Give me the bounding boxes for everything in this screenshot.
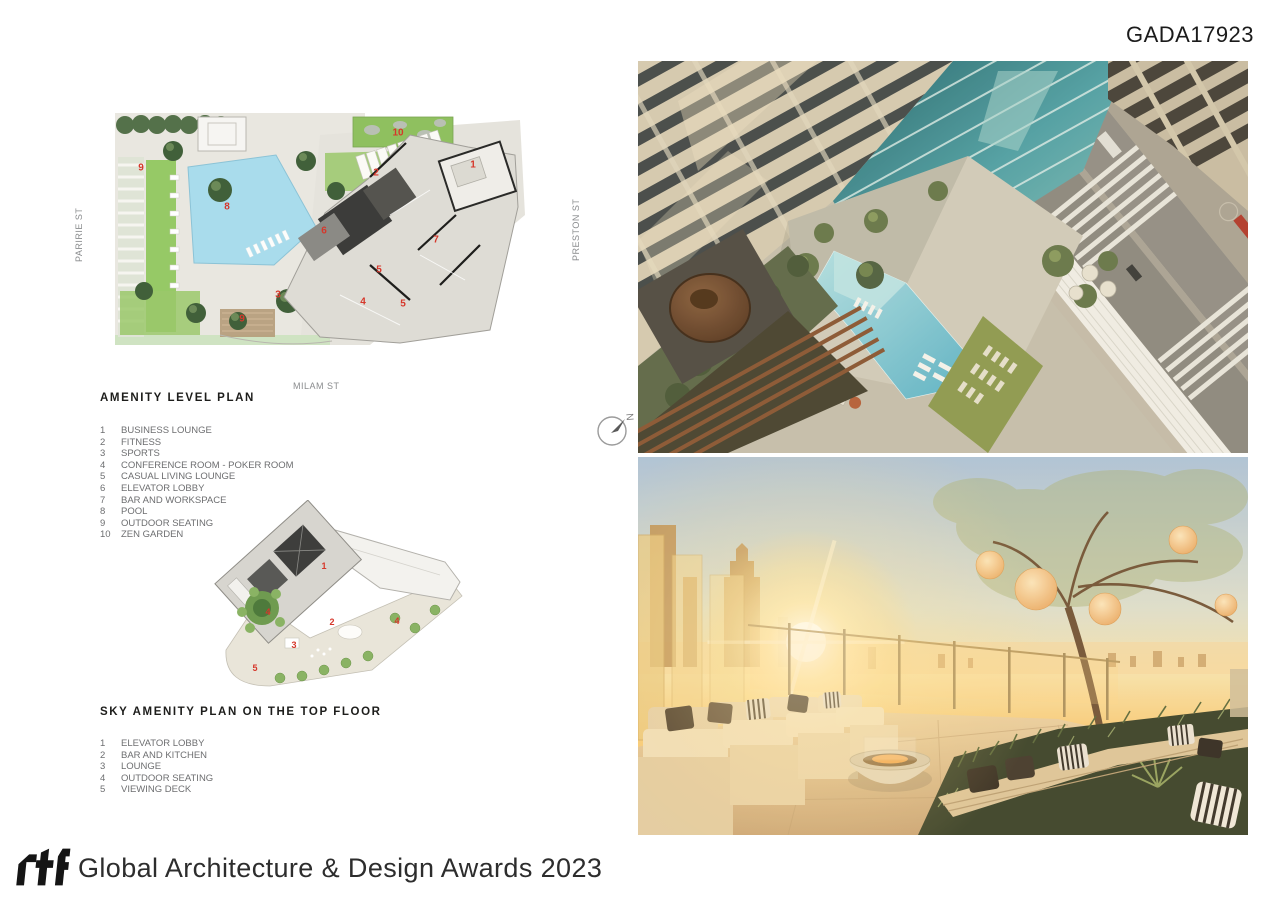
marker-2: 2 bbox=[329, 617, 334, 627]
marker-2: 2 bbox=[373, 168, 379, 179]
marker-3: 3 bbox=[291, 640, 296, 650]
legend-item: 2FITNESS bbox=[100, 437, 294, 449]
award-title: Global Architecture & Design Awards 2023 bbox=[78, 853, 602, 884]
marker-4b: 4 bbox=[394, 616, 399, 626]
north-letter: N bbox=[623, 413, 635, 421]
legend-item: 1ELEVATOR LOBBY bbox=[100, 738, 213, 750]
legend-item: 5CASUAL LIVING LOUNGE bbox=[100, 471, 294, 483]
marker-6: 6 bbox=[321, 226, 327, 237]
marker-9a: 9 bbox=[138, 163, 144, 174]
marker-8: 8 bbox=[224, 202, 230, 213]
amenity-level-plan-drawing: 9 10 1 2 8 6 7 5 3 4 5 9 bbox=[70, 95, 530, 385]
marker-1: 1 bbox=[321, 561, 326, 571]
marker-5b: 5 bbox=[400, 299, 406, 310]
plan1-title: AMENITY LEVEL PLAN bbox=[100, 392, 255, 404]
tower-slab bbox=[215, 500, 361, 643]
marker-5a: 5 bbox=[376, 265, 382, 276]
sunset-roof-terrace-photo bbox=[638, 457, 1248, 835]
marker-9b: 9 bbox=[239, 314, 245, 325]
legend-item: 4OUTDOOR SEATING bbox=[100, 773, 213, 785]
street-label-paririe: PARIRIE ST bbox=[74, 208, 84, 262]
plan2-title: SKY AMENITY PLAN ON THE TOP FLOOR bbox=[100, 706, 382, 718]
marker-4: 4 bbox=[360, 297, 366, 308]
marker-7: 7 bbox=[433, 235, 439, 246]
entry-code: GADA17923 bbox=[1126, 22, 1254, 48]
legend-item: 3SPORTS bbox=[100, 448, 294, 460]
north-arrow-icon: N bbox=[592, 406, 638, 450]
street-label-milam: MILAM ST bbox=[293, 381, 340, 391]
plan2-legend: 1ELEVATOR LOBBY 2BAR AND KITCHEN 3LOUNGE… bbox=[100, 738, 213, 796]
legend-item: 5VIEWING DECK bbox=[100, 784, 213, 796]
marker-1: 1 bbox=[470, 160, 476, 171]
marker-5: 5 bbox=[252, 663, 257, 673]
legend-item: 3LOUNGE bbox=[100, 761, 213, 773]
sky-amenity-plan-drawing: 1 4 2 4 3 5 bbox=[210, 500, 480, 700]
legend-item: 2BAR AND KITCHEN bbox=[100, 750, 213, 762]
rtf-logo: rtf bbox=[13, 842, 71, 890]
legend-item: 1BUSINESS LOUNGE bbox=[100, 425, 294, 437]
legend-item: 4CONFERENCE ROOM - POKER ROOM bbox=[100, 460, 294, 472]
marker-4a: 4 bbox=[265, 607, 270, 617]
street-label-preston: PRESTON ST bbox=[571, 199, 581, 261]
aerial-pool-deck-photo bbox=[638, 61, 1248, 453]
marker-3: 3 bbox=[275, 290, 281, 301]
legend-item: 6ELEVATOR LOBBY bbox=[100, 483, 294, 495]
award-board: GADA17923 bbox=[0, 0, 1273, 900]
marker-10: 10 bbox=[392, 128, 404, 139]
